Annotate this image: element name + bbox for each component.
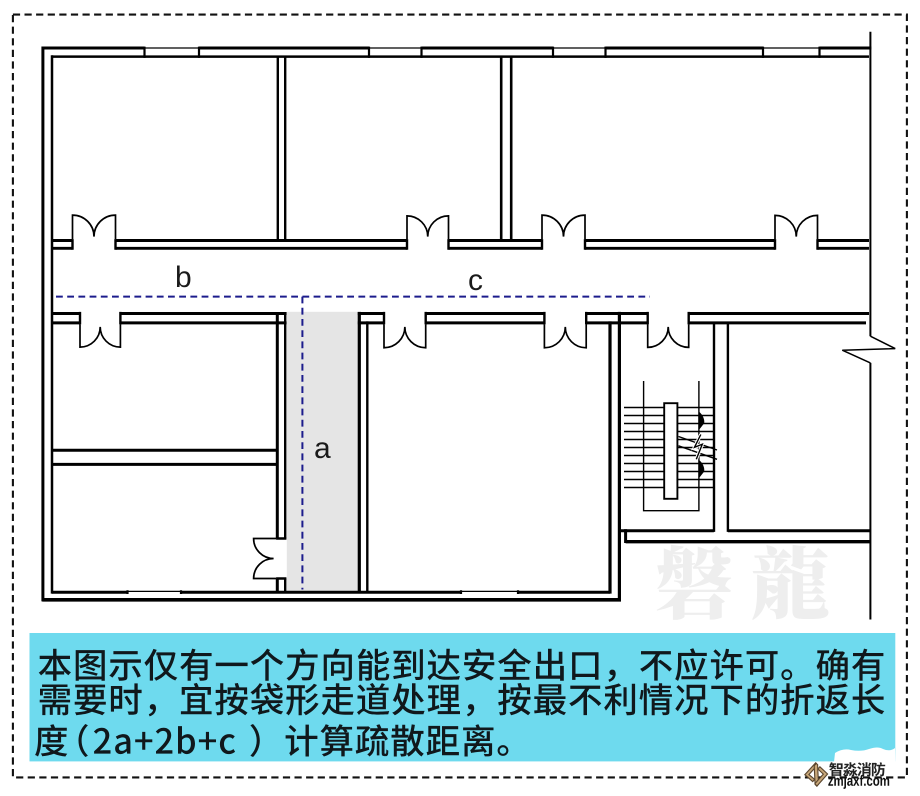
svg-text:b: b: [175, 261, 192, 294]
svg-text:c: c: [468, 264, 483, 297]
svg-text:a: a: [314, 432, 331, 465]
